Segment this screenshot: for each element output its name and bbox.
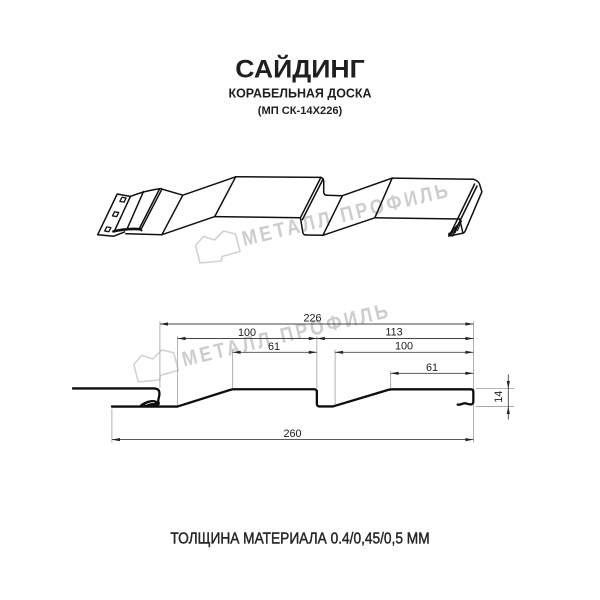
svg-text:61: 61 — [426, 362, 438, 374]
svg-text:100: 100 — [238, 327, 256, 339]
svg-text:226: 226 — [303, 313, 321, 325]
svg-text:КОРАБЕЛЬНАЯ ДОСКА: КОРАБЕЛЬНАЯ ДОСКА — [229, 86, 372, 101]
svg-text:САЙДИНГ: САЙДИНГ — [235, 54, 365, 84]
svg-text:14: 14 — [493, 391, 505, 403]
svg-text:260: 260 — [283, 428, 301, 440]
svg-text:61: 61 — [268, 341, 280, 353]
svg-text:(МП СК-14Х226): (МП СК-14Х226) — [258, 105, 343, 117]
svg-text:113: 113 — [385, 327, 402, 339]
svg-text:ТОЛЩИНА МАТЕРИАЛА 0.4/0,45/0,5: ТОЛЩИНА МАТЕРИАЛА 0.4/0,45/0,5 ММ — [170, 530, 429, 547]
svg-text:100: 100 — [395, 340, 413, 352]
